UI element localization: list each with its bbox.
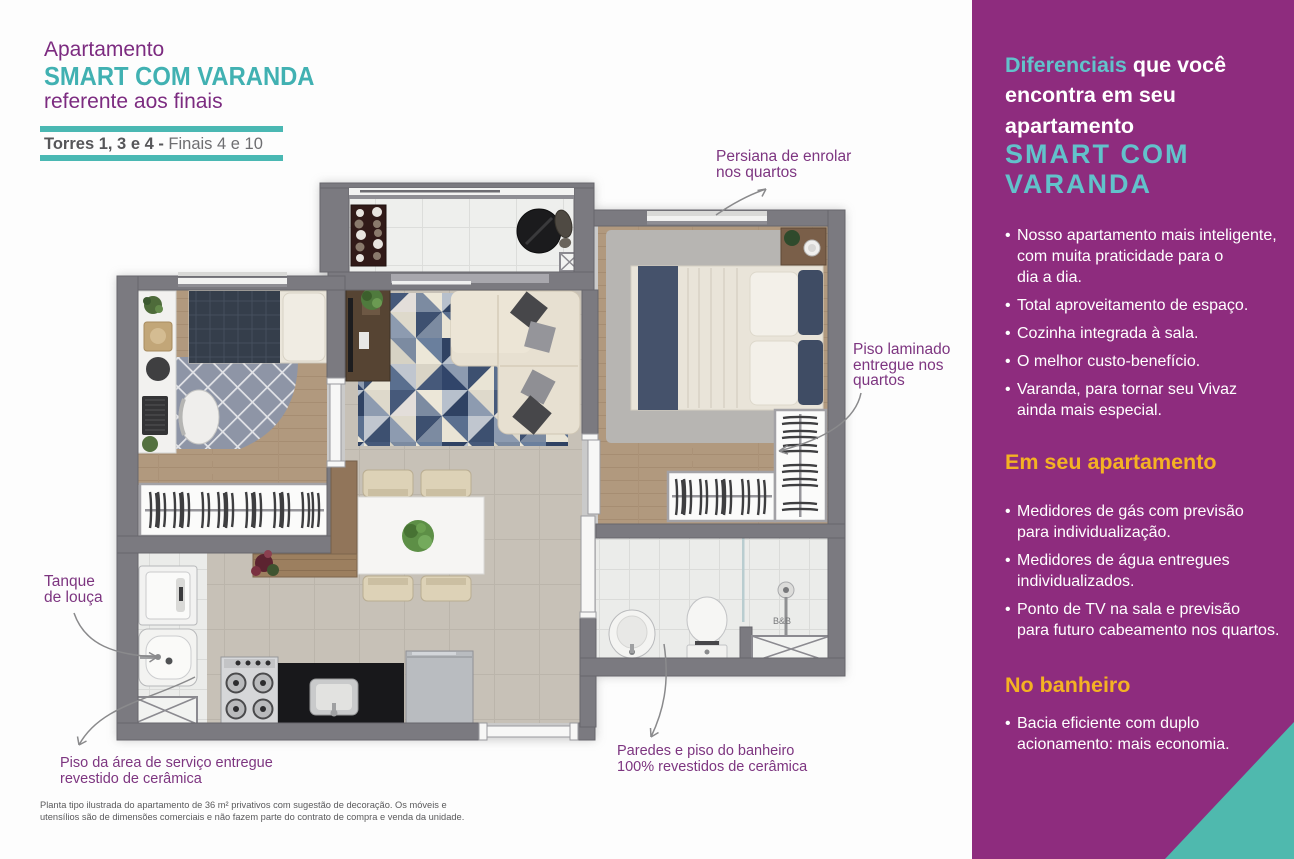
svg-text:B&B: B&B xyxy=(773,616,791,626)
